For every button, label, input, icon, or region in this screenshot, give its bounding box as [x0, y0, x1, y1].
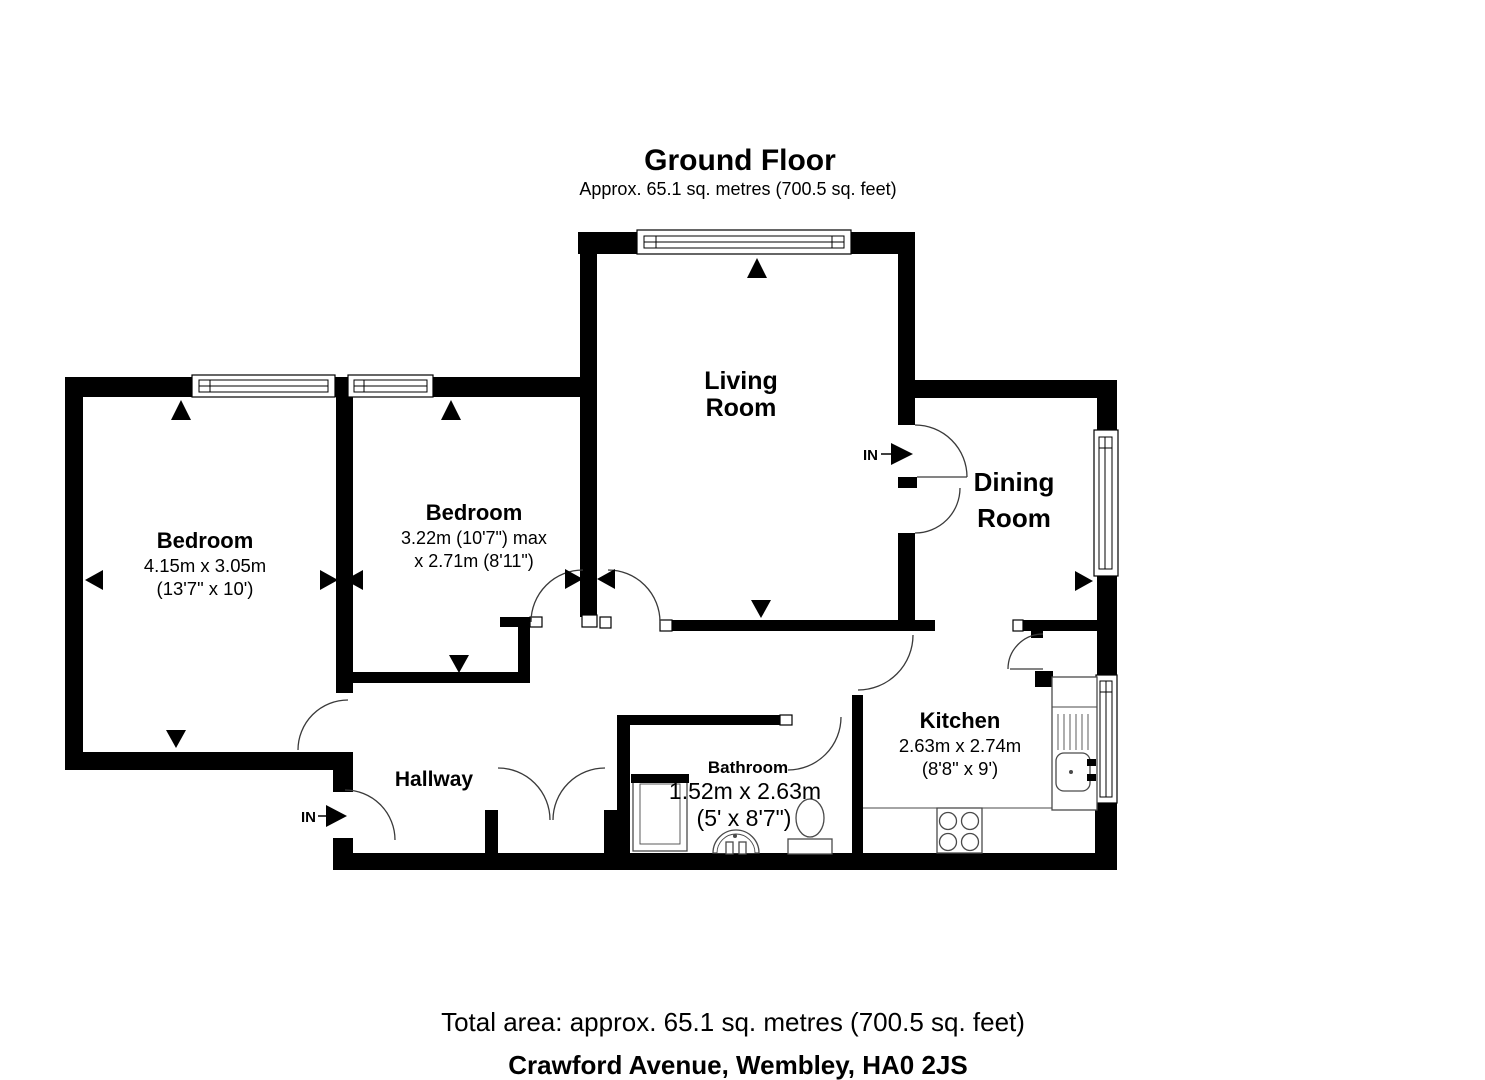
- wall: [336, 377, 353, 693]
- marker-down-icon: [449, 655, 469, 673]
- wall: [333, 853, 1113, 870]
- floorplan-svg: IN IN Living Room Dining Room Bedroom 4.…: [0, 0, 1485, 1080]
- room-dims-bathroom: (5' x 8'7"): [697, 805, 792, 831]
- door-arc-living: [608, 570, 660, 622]
- arrow-right-icon: [891, 443, 913, 465]
- door-jamb: [780, 715, 792, 725]
- kitchen-hob-icon: [863, 808, 1052, 853]
- door-arc-bedroom1: [298, 700, 348, 750]
- wall: [65, 377, 195, 397]
- wall: [65, 377, 83, 770]
- room-dims-kitchen: 2.63m x 2.74m: [899, 735, 1021, 756]
- room-label-bathroom: Bathroom: [708, 758, 788, 777]
- marker-left-icon: [597, 569, 615, 589]
- room-dims-bedroom2: 3.22m (10'7") max: [401, 528, 547, 548]
- window-living: [637, 230, 851, 254]
- room-dims-bedroom1: (13'7" x 10'): [157, 578, 254, 599]
- header: Ground Floor Approx. 65.1 sq. metres (70…: [579, 144, 896, 199]
- entrance-arrows: IN IN: [301, 443, 913, 827]
- door-jamb: [582, 615, 597, 627]
- room-label-dining: Dining: [974, 467, 1055, 497]
- room-label-dining: Room: [977, 503, 1051, 533]
- wall: [1097, 574, 1117, 680]
- total-area-text: Total area: approx. 65.1 sq. metres (700…: [441, 1007, 1025, 1037]
- room-label-living: Living: [704, 367, 778, 395]
- door-jamb: [600, 617, 611, 628]
- room-label-bedroom2: Bedroom: [426, 500, 523, 525]
- door-jamb: [660, 620, 672, 631]
- wall: [898, 232, 915, 425]
- wall: [617, 715, 782, 725]
- door-arc-cupboard-left: [498, 768, 550, 820]
- room-label-hallway: Hallway: [395, 768, 474, 791]
- door-arc-dining-lower: [915, 488, 960, 533]
- footer: Total area: approx. 65.1 sq. metres (700…: [441, 1007, 1025, 1080]
- arrow-right-icon: [326, 805, 347, 827]
- window-bedroom1: [192, 375, 335, 397]
- wall: [580, 232, 597, 617]
- door-arc-bathroom: [788, 717, 841, 770]
- room-dims-bedroom2: x 2.71m (8'11"): [414, 551, 534, 571]
- wall: [617, 715, 630, 855]
- marker-down-icon: [751, 600, 771, 618]
- wall: [1035, 671, 1053, 687]
- marker-up-icon: [171, 400, 191, 420]
- marker-down-icon: [166, 730, 186, 748]
- door-arc-kitchen-hall: [858, 635, 913, 690]
- window-kitchen: [1096, 675, 1117, 803]
- marker-right-icon: [320, 570, 338, 590]
- room-label-kitchen: Kitchen: [920, 708, 1001, 733]
- entrance-label: IN: [301, 809, 316, 826]
- wall: [65, 752, 347, 770]
- wall: [852, 695, 863, 855]
- wall: [1013, 620, 1097, 631]
- entrance-arrow-dining: IN: [863, 443, 913, 465]
- wall: [604, 810, 617, 855]
- door-arc-dining-upper: [915, 425, 967, 477]
- wall: [1095, 801, 1117, 870]
- entrance-arrow-hall: IN: [301, 805, 347, 827]
- wall: [578, 232, 640, 254]
- basin-icon: [713, 830, 759, 854]
- room-dims-bathroom: 1.52m x 2.63m: [669, 778, 821, 804]
- room-dims-kitchen: (8'8" x 9'): [922, 758, 998, 779]
- door-arc-cupboard-right: [553, 768, 605, 820]
- wall: [485, 810, 498, 855]
- door-arc-entrance: [345, 790, 395, 840]
- door-jamb: [1013, 620, 1023, 631]
- wall: [660, 620, 935, 631]
- wall: [915, 380, 1117, 398]
- page-subtitle: Approx. 65.1 sq. metres (700.5 sq. feet): [579, 179, 896, 199]
- wall: [898, 533, 915, 631]
- wall: [898, 477, 917, 488]
- marker-left-icon: [85, 570, 103, 590]
- wall: [428, 377, 585, 397]
- toilet-icon: [788, 799, 832, 854]
- door-arc-kitchen-dining: [1008, 634, 1043, 669]
- floorplan-page: IN IN Living Room Dining Room Bedroom 4.…: [0, 0, 1485, 1080]
- entrance-label: IN: [863, 447, 878, 464]
- window-dining: [1094, 430, 1118, 576]
- door-jamb: [530, 617, 542, 627]
- marker-right-icon: [1075, 571, 1093, 591]
- room-label-living: Room: [706, 394, 777, 422]
- wall: [345, 672, 530, 683]
- wall: [500, 617, 530, 627]
- window-bedroom2: [348, 375, 433, 397]
- room-dims-bedroom1: 4.15m x 3.05m: [144, 555, 266, 576]
- wall: [1097, 380, 1117, 435]
- room-label-bedroom1: Bedroom: [157, 528, 254, 553]
- page-title: Ground Floor: [644, 144, 836, 177]
- wall: [333, 752, 353, 792]
- marker-up-icon: [747, 258, 767, 278]
- address-text: Crawford Avenue, Wembley, HA0 2JS: [508, 1050, 967, 1080]
- marker-up-icon: [441, 400, 461, 420]
- kitchen-sink-icon: [1052, 677, 1097, 810]
